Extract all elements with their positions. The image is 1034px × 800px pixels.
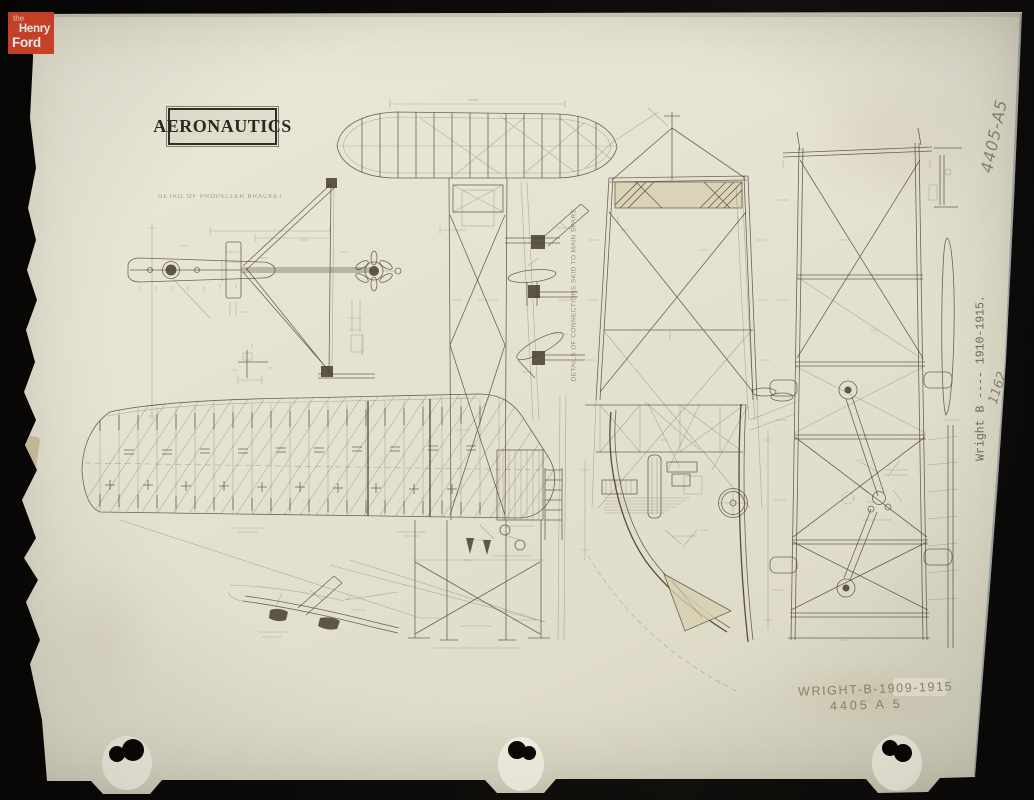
propeller-bracket-note: DETAIL OF PROPELLER BRACKET (158, 194, 283, 200)
logo-line-ford: Ford (12, 36, 50, 50)
aeronautics-masthead-label: AERONAUTICS (168, 108, 277, 145)
stamp-number: 4405 A 5 (830, 697, 903, 714)
logo-line-henry: Henry (12, 24, 50, 36)
henry-ford-logo: the Henry Ford (8, 12, 54, 54)
punch-hole-left (102, 736, 152, 790)
punch-hole-center (498, 737, 544, 791)
logo-line-the: the (13, 15, 50, 23)
item-type-label: Wright B ---- 1910-1915. (975, 295, 988, 461)
paper-sheet: AERONAUTICS DETAIL OF PROPELLER BRACKET … (0, 0, 1034, 800)
punch-hole-right (872, 735, 922, 791)
photographed-archival-drawing: AERONAUTICS DETAIL OF PROPELLER BRACKET … (0, 0, 1034, 800)
connections-note: DETAILS OF CONNECTIONS SKID TO MAIN SPAR… (571, 209, 578, 382)
